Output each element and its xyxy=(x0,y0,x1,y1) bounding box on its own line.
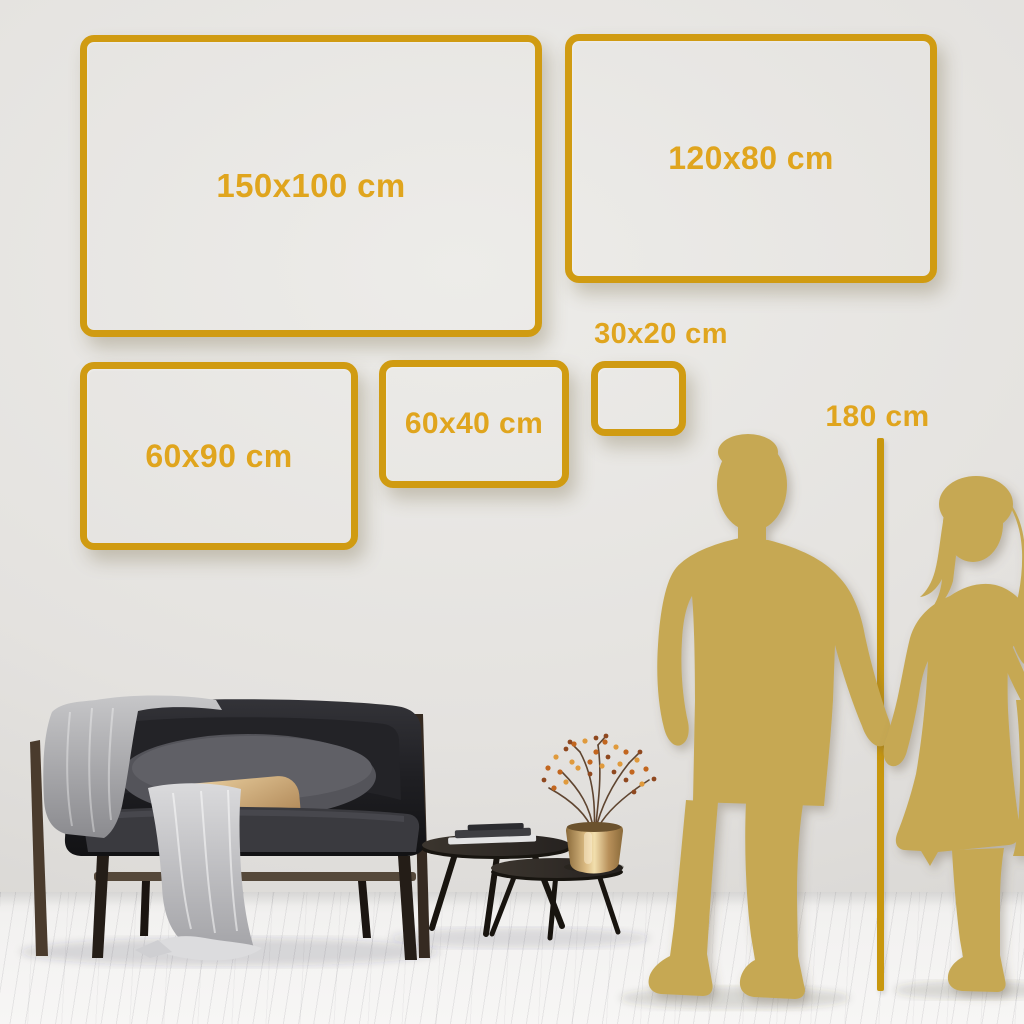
held-hands xyxy=(884,732,906,764)
couple-silhouette xyxy=(0,0,1024,1024)
man-silhouette xyxy=(649,434,891,999)
woman-silhouette xyxy=(884,476,1024,992)
size-guide-scene: 150x100 cm 120x80 cm 60x90 cm 60x40 cm 3… xyxy=(0,0,1024,1024)
